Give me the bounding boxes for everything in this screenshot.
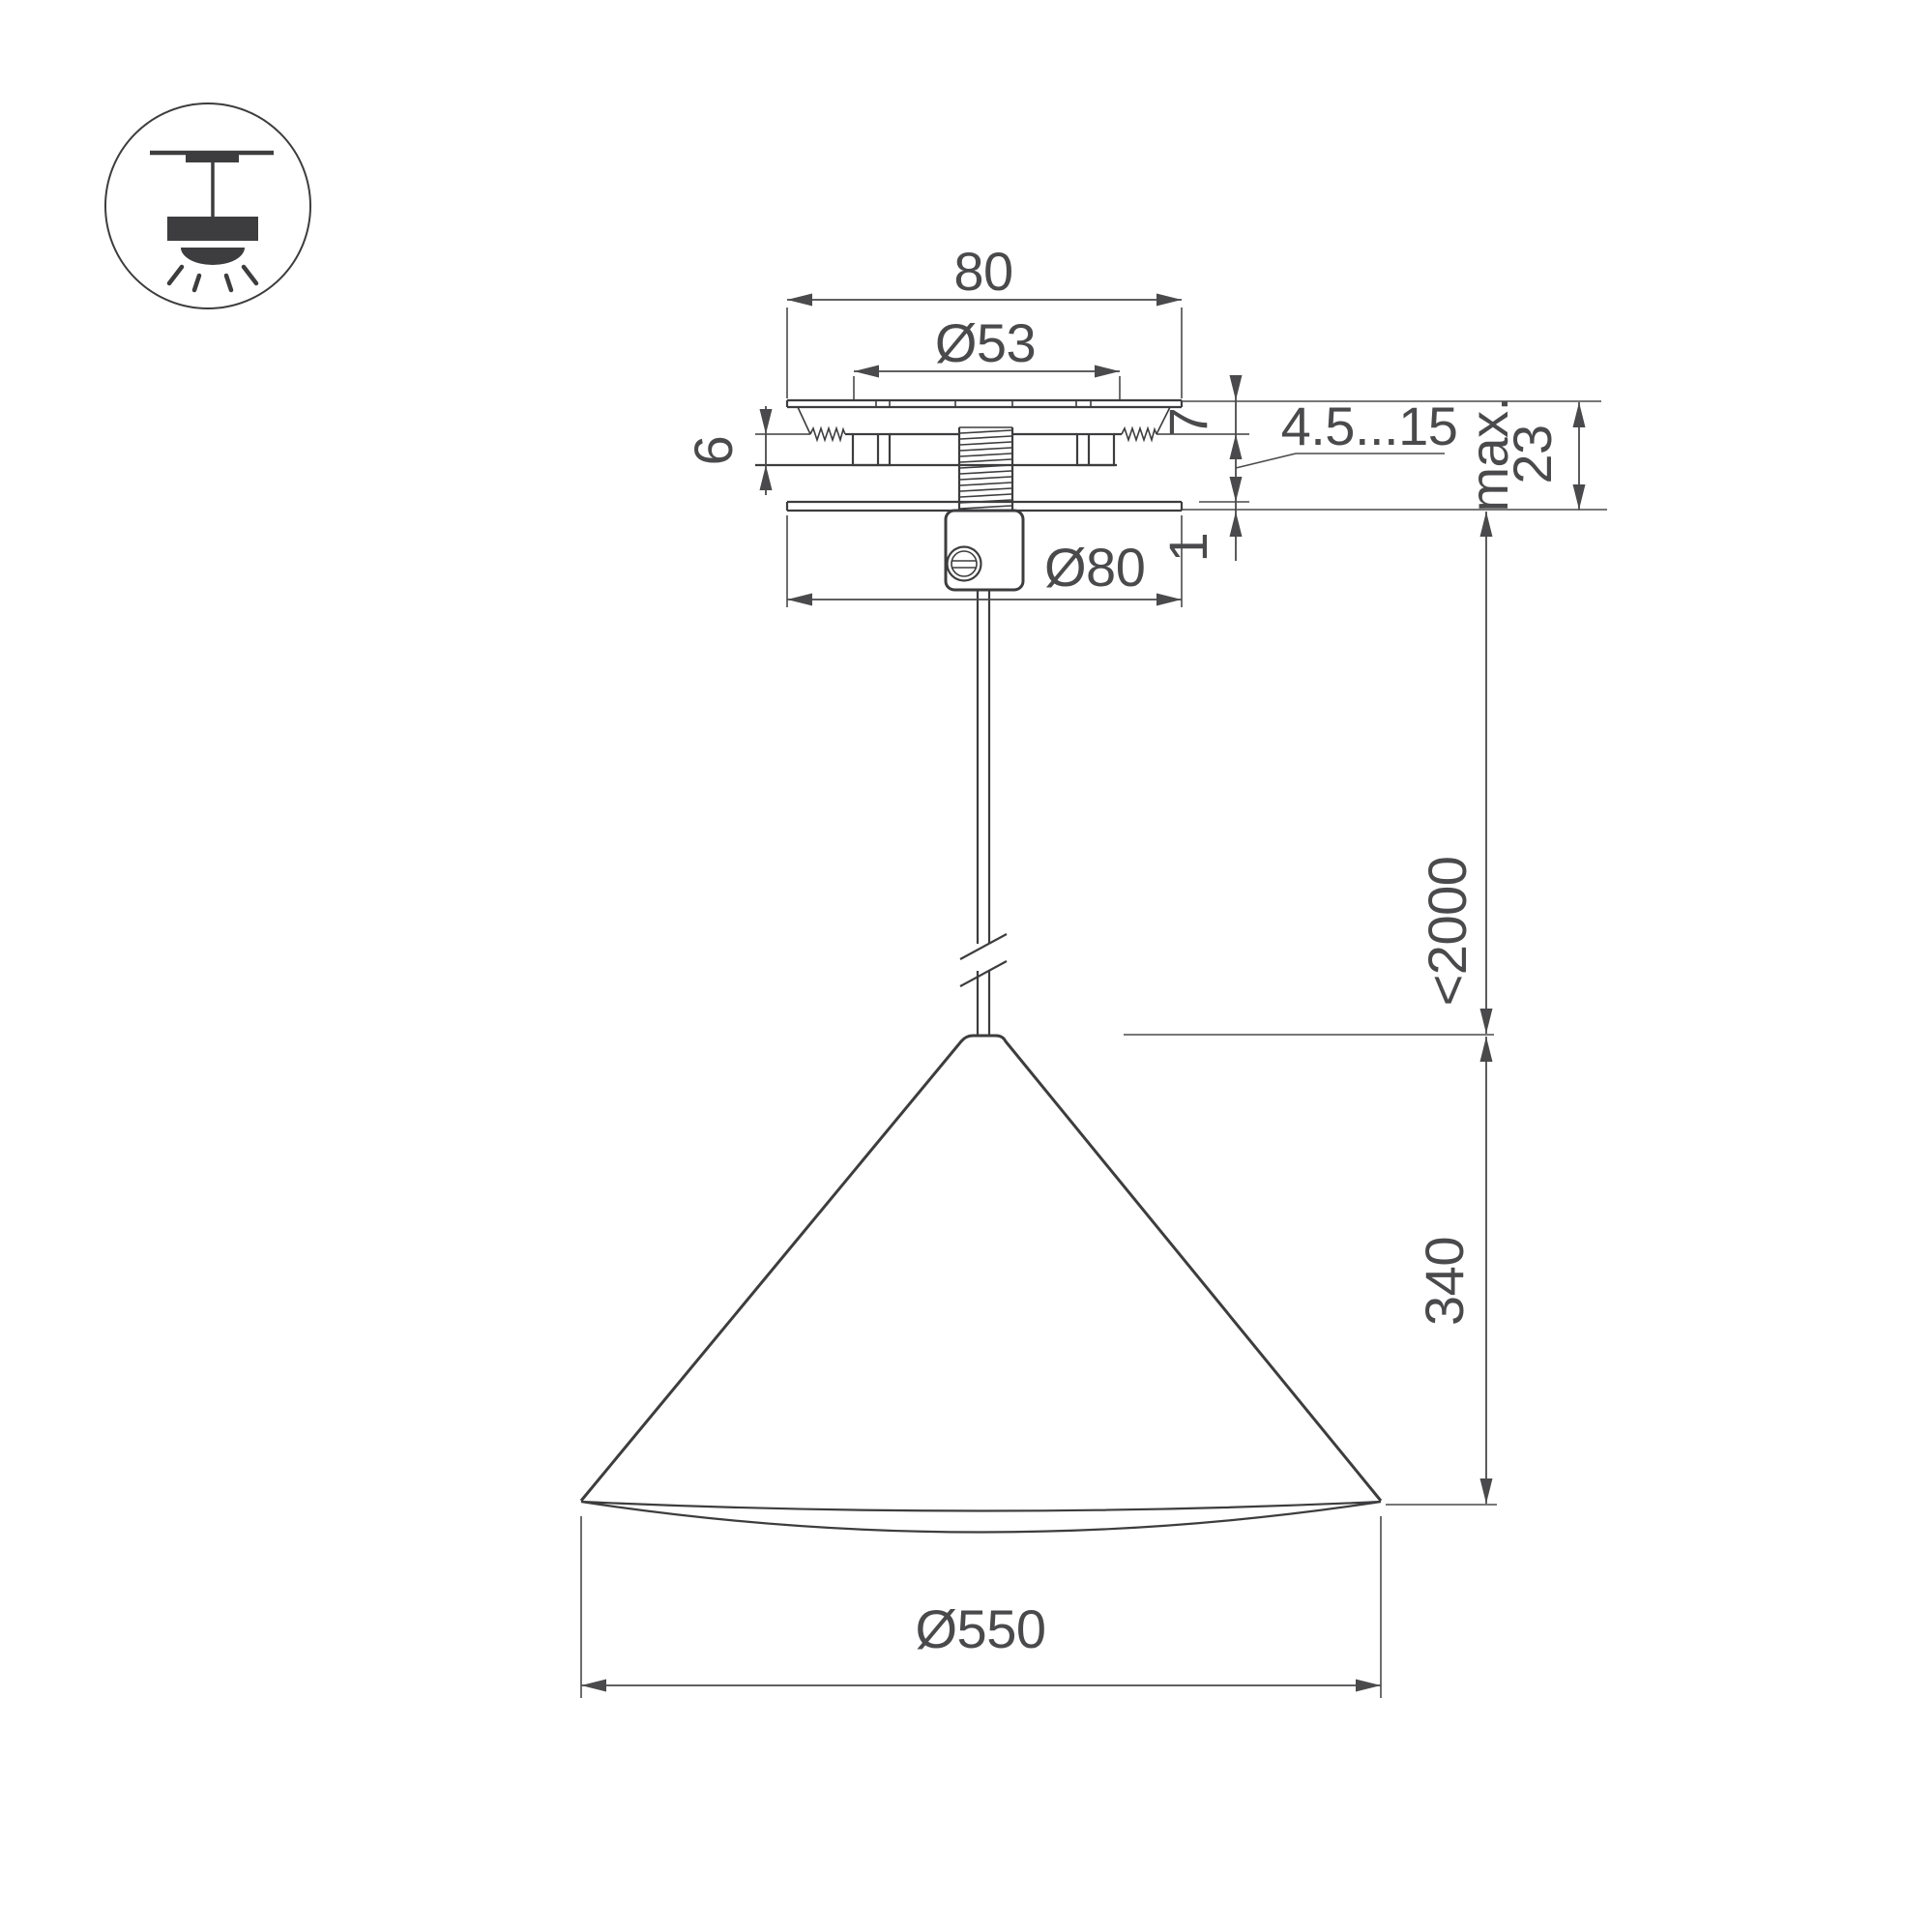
pendant-ceiling-mount-icon: [105, 103, 310, 308]
threaded-rod: [959, 427, 1012, 511]
dim-label-o53: Ø53: [935, 312, 1036, 373]
technical-drawing-page: 80 Ø53 7 1 4.5...15 6 max.: [0, 0, 1932, 1932]
dim-wire-length: <2000: [1124, 512, 1494, 1035]
dim-canopy-hole-dia: Ø53: [854, 312, 1120, 399]
dim-shade-dia: Ø550: [581, 1516, 1381, 1698]
cable-break-symbol: [960, 934, 1007, 986]
dim-label-23: 23: [1502, 424, 1563, 483]
dim-shade-height: 340: [1386, 1037, 1497, 1505]
dim-label-1: 1: [1157, 533, 1218, 563]
cone-bottom-rim: [581, 1502, 1381, 1533]
dim-label-2000: <2000: [1417, 857, 1478, 1007]
icon-lamp-body: [167, 217, 258, 241]
suspension-cable: [960, 590, 1007, 1036]
cable-lock-box: [946, 511, 1023, 590]
dim-clip-height: 6: [683, 406, 773, 495]
pendant-lamp-dimension-drawing: 80 Ø53 7 1 4.5...15 6 max.: [0, 0, 1932, 1932]
dim-canopy-dia: Ø80: [787, 515, 1182, 607]
canopy-top-plate: [787, 400, 1182, 407]
icon-circle: [105, 103, 310, 308]
icon-light-dome: [181, 248, 245, 265]
cone-shade: [581, 1036, 1381, 1533]
dim-stack-right: 7 1 4.5...15: [1157, 375, 1457, 562]
dim-label-340: 340: [1414, 1237, 1475, 1326]
spring-zigzag-right: [1122, 428, 1156, 440]
dim-label-o550: Ø550: [916, 1598, 1046, 1659]
dim-label-o80: Ø80: [1044, 537, 1145, 598]
spring-zigzag-left: [810, 428, 845, 440]
icon-canopy-plate: [186, 155, 239, 162]
cone-outline: [581, 1036, 1381, 1501]
dim-label-7: 7: [1157, 408, 1218, 438]
dim-label-ceiling-range: 4.5...15: [1281, 395, 1458, 456]
dim-label-80: 80: [953, 241, 1012, 302]
icon-light-rays: [169, 267, 256, 290]
thread-hatching: [960, 430, 1011, 509]
dim-label-6: 6: [683, 436, 744, 466]
